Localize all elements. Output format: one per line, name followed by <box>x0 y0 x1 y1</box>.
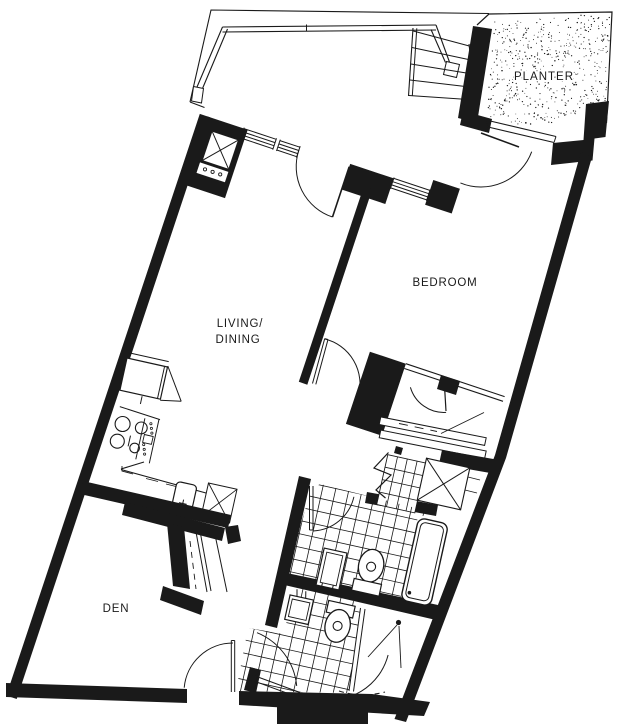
svg-text:PLANTER: PLANTER <box>514 71 574 83</box>
svg-text:BEDROOM: BEDROOM <box>412 277 477 289</box>
svg-text:DEN: DEN <box>103 603 130 615</box>
svg-text:DINING: DINING <box>215 334 260 346</box>
svg-text:LIVING/: LIVING/ <box>217 318 264 330</box>
